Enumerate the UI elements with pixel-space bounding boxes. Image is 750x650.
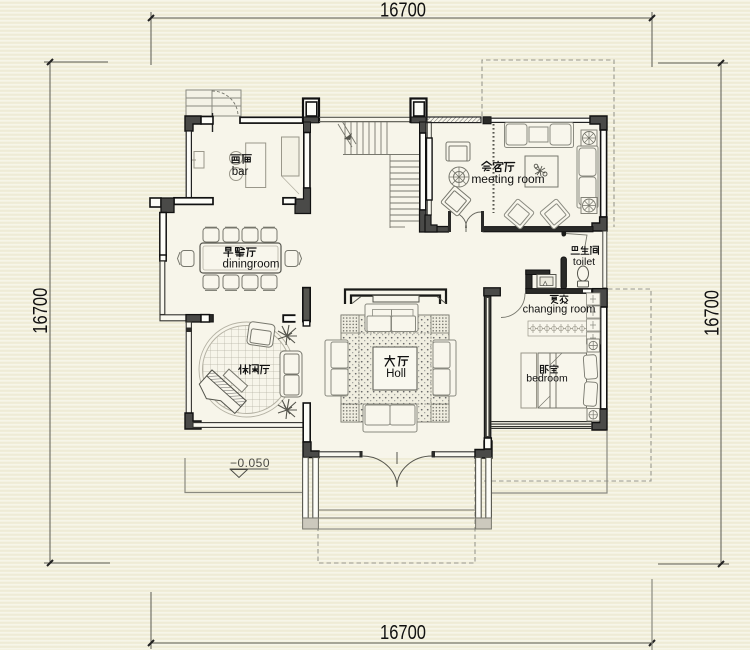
svg-text:changing room: changing room — [523, 304, 596, 316]
svg-text:meeting room: meeting room — [471, 172, 544, 186]
svg-text:−0.050: −0.050 — [230, 456, 270, 470]
svg-text:16700: 16700 — [380, 0, 426, 22]
svg-text:bar: bar — [232, 166, 249, 178]
svg-text:bedroom: bedroom — [526, 373, 568, 385]
svg-text:toilet: toilet — [573, 256, 595, 268]
svg-text:16700: 16700 — [380, 621, 426, 644]
svg-text:diningroom: diningroom — [223, 259, 280, 271]
svg-text:16700: 16700 — [701, 290, 724, 336]
svg-text:Holl: Holl — [386, 368, 406, 380]
svg-text:16700: 16700 — [29, 288, 52, 334]
